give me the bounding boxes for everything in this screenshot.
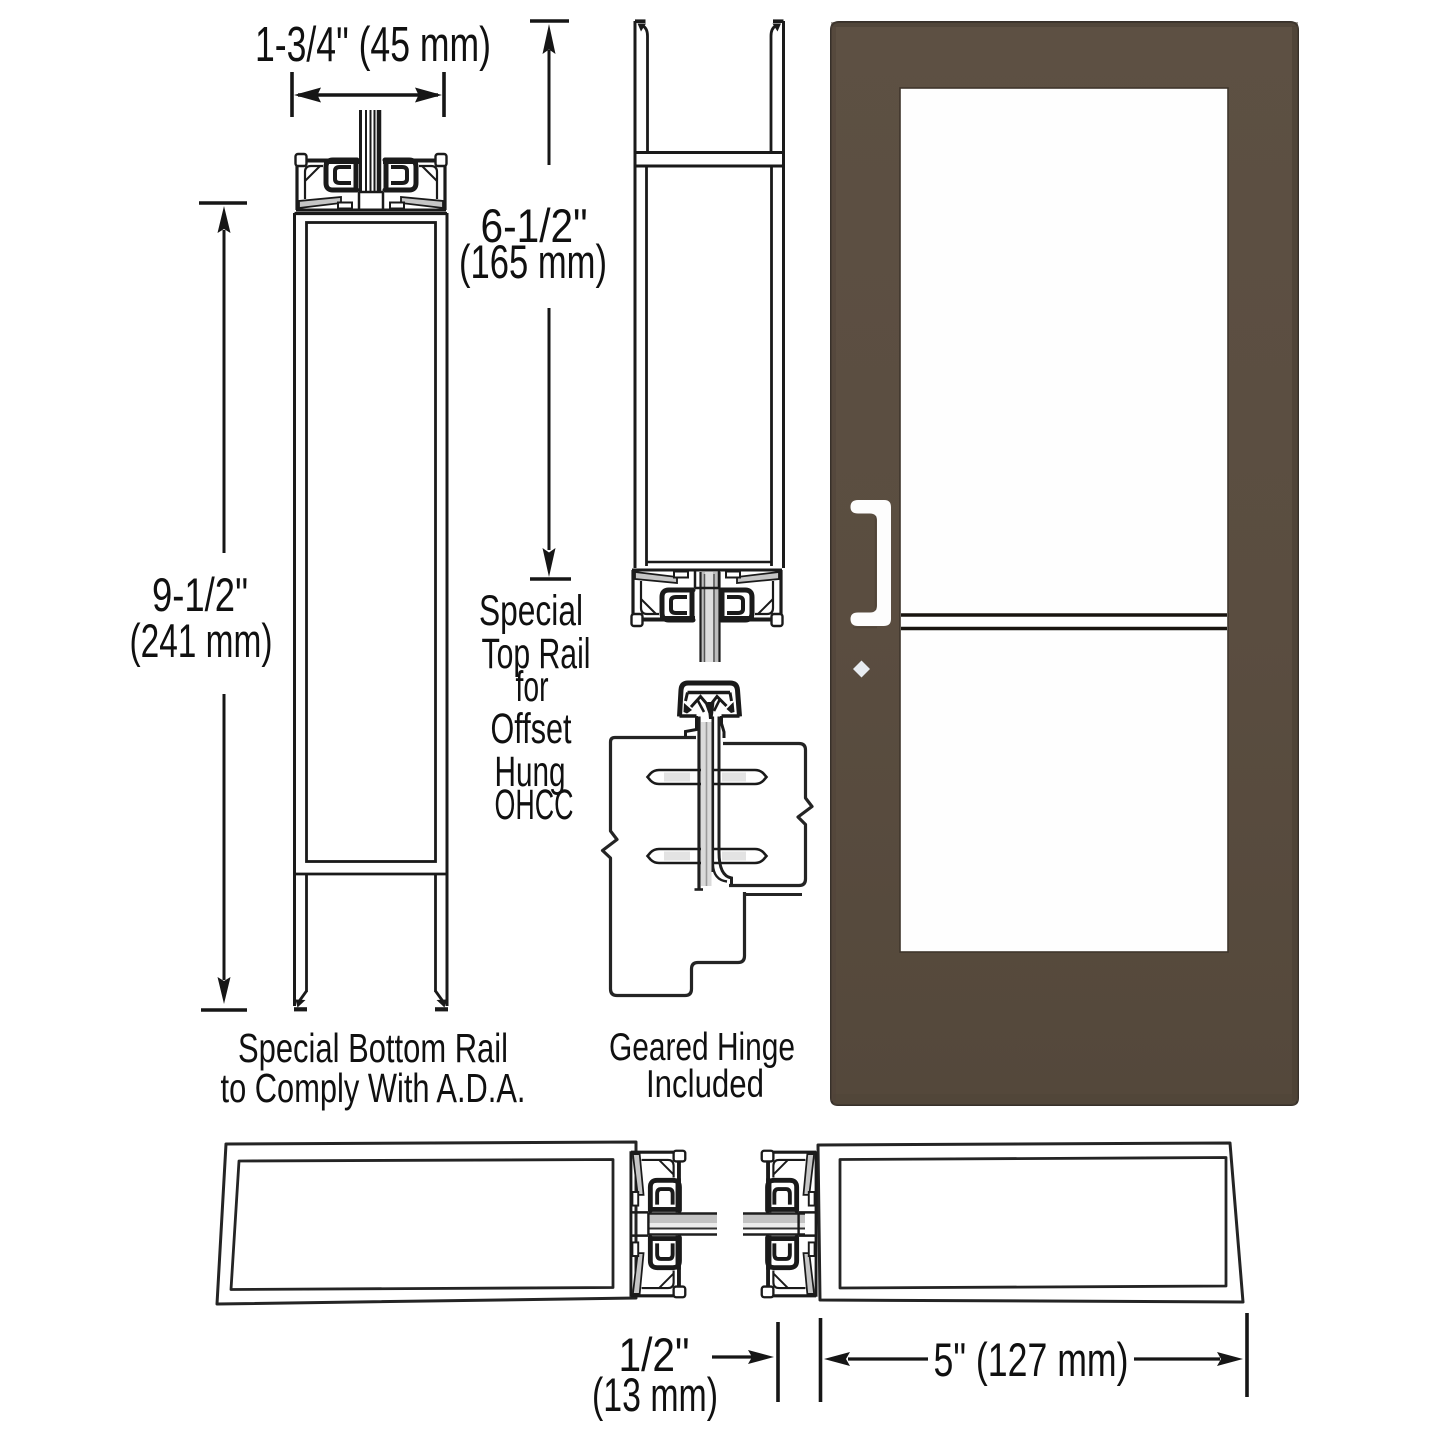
svg-text:(13 mm): (13 mm) [592, 1368, 718, 1421]
svg-text:Included: Included [646, 1063, 764, 1106]
svg-text:for: for [516, 663, 549, 711]
svg-text:OHCC: OHCC [495, 781, 574, 829]
svg-text:to Comply With A.D.A.: to Comply With A.D.A. [221, 1065, 526, 1111]
svg-text:Offset: Offset [491, 705, 572, 753]
svg-text:5" (127 mm): 5" (127 mm) [934, 1333, 1129, 1386]
svg-text:(165 mm): (165 mm) [459, 235, 607, 288]
svg-text:Special: Special [479, 587, 583, 635]
svg-text:1-3/4" (45 mm): 1-3/4" (45 mm) [255, 18, 491, 72]
svg-text:(241 mm): (241 mm) [130, 614, 273, 667]
